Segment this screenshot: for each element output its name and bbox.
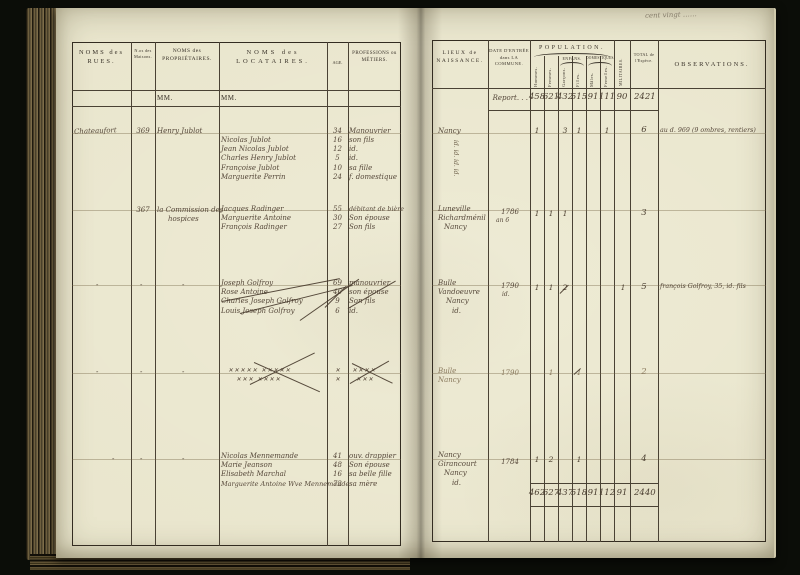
pencil-folio-note: cent vingt …… — [645, 10, 697, 20]
tenant-professions: débitant de bière Son épouse Son fils — [349, 205, 404, 233]
population-mark: 1 — [600, 126, 614, 135]
column-line — [658, 40, 659, 542]
header-numeros-maisons: N.os des Maisons. — [131, 48, 155, 60]
header-date-entree: DATE D'ENTRÉE dans LA COMMUNE. — [489, 48, 529, 68]
mm-label: MM. — [157, 93, 173, 103]
owner-age: 34 — [327, 127, 348, 135]
ditto-dash: - — [140, 368, 142, 376]
header-bottom-line — [432, 88, 766, 89]
tenant-ages: 55 30 27 — [327, 205, 348, 233]
entry-date-note: an 6 — [496, 217, 509, 224]
tenant-profession: son fils — [349, 136, 397, 145]
tenant-profession: id. — [349, 145, 397, 154]
birthplace: Nancy — [438, 127, 461, 135]
tenant-name: Marguerite Perrin — [221, 173, 296, 182]
header-bottom-line — [72, 90, 401, 91]
header-filles: Filles. — [576, 66, 581, 87]
header-femmes: Femmes. — [548, 57, 553, 87]
total-value: 6 — [632, 125, 656, 135]
tenant-age: 16 — [327, 136, 348, 145]
population-mark: 1 — [530, 126, 544, 135]
column-line — [630, 40, 631, 542]
total-value: 3 — [632, 208, 656, 218]
scratched-age: ✕ — [327, 367, 348, 374]
header-population: POPULATION. — [530, 44, 614, 53]
birthplaces: Luneville Richardménil Nancy — [438, 205, 486, 233]
tenant-name: François Radinger — [221, 223, 291, 232]
population-mark: 3 — [558, 126, 572, 135]
page-total: 2440 — [634, 488, 654, 498]
population-mark: 1 — [530, 283, 544, 292]
tenant-professions: ouv. drappier Son épouse sa belle fille … — [349, 452, 396, 489]
total-value: 4 — [632, 454, 656, 464]
totals-box-top-line — [530, 483, 658, 484]
entry-date: 1790 — [492, 369, 528, 377]
column-line — [155, 42, 156, 546]
report-value: 90 — [612, 92, 632, 102]
tenant-age: 6 — [327, 307, 348, 316]
tenant-profession: Son fils — [349, 223, 404, 232]
population-mark: 1 — [572, 455, 586, 464]
observation: françois Golfroy, 35, id. fils — [660, 283, 746, 290]
ditto-dash: - — [96, 281, 98, 289]
population-mark: 1 — [616, 283, 630, 292]
tenant-names-struck: Joseph Golfroy Rose Antoine Charles Jose… — [221, 279, 303, 316]
tenant-age: 48 — [327, 461, 348, 470]
tenant-age: 55 — [327, 205, 348, 214]
header-observations: OBSERVATIONS. — [658, 60, 766, 69]
birthplace: Nancy — [438, 451, 477, 460]
birthplaces: Bulle Vandoeuvre Nancy id. — [438, 279, 480, 316]
ditto-dash: - — [96, 368, 98, 376]
population-mark: 1 — [530, 209, 544, 218]
population-mark: 1 — [572, 126, 586, 135]
header-total-espece: TOTAL de l'Espèce. — [630, 52, 658, 64]
population-mark: 1 — [544, 209, 558, 218]
tenant-profession: Son épouse — [349, 461, 396, 470]
mm-label: MM. — [221, 93, 237, 103]
scratched-age: ✕ — [327, 376, 348, 383]
population-mark: 1 — [544, 368, 558, 377]
birthplace: Girancourt — [438, 460, 477, 469]
tenant-age: 10 — [327, 164, 348, 173]
report-value: 2421 — [634, 92, 654, 102]
header-noms-locataires: NOMS des LOCATAIRES. — [219, 48, 327, 67]
header-militaires: MILITAIRES. — [619, 44, 623, 86]
tenant-profession: ouv. drappier — [349, 452, 396, 461]
tenant-profession: id. — [349, 154, 397, 163]
birthplace: Bulle — [438, 279, 480, 288]
report-label: Report. . . — [490, 94, 528, 102]
entry-date: 1784 — [492, 458, 528, 466]
header-garcons: Garçons. — [562, 66, 567, 87]
header-enfans: ENFANS. — [558, 56, 586, 62]
owner-name: Henry Jublot — [157, 127, 202, 135]
ditto-dash: - — [112, 455, 114, 463]
header-males: Mâles. — [590, 66, 595, 87]
header-professions: PROFESSIONS ou MÉTIERS. — [348, 50, 401, 65]
photographed-register-scene: cent vingt …… NOMS des RUES. N.os des Ma… — [0, 0, 800, 575]
tenant-profession: sa belle fille — [349, 470, 396, 479]
tenant-ages: 16 12 5 10 24 — [327, 136, 348, 182]
report-bottom-line — [488, 110, 658, 111]
tenant-profession: débitant de bière — [349, 205, 404, 214]
total-value: 2 — [632, 367, 656, 377]
tenant-age: 41 — [327, 452, 348, 461]
tenant-age: 72 — [327, 480, 348, 489]
ink-layer: cent vingt …… NOMS des RUES. N.os des Ma… — [0, 0, 800, 575]
ditto-dash: - — [182, 368, 184, 376]
column-line — [219, 42, 220, 546]
header-hommes: Hommes. — [534, 57, 539, 87]
header-femelles: Femelles. — [604, 66, 609, 87]
birthplace: Richardménil — [438, 214, 486, 223]
house-number: 367 — [131, 206, 155, 214]
birthplace: Luneville — [438, 205, 486, 214]
header-noms-rues: NOMS des RUES. — [74, 48, 129, 67]
header-domestiques: DOMESTIQUES. — [586, 56, 614, 61]
tenant-profession: Son fils — [349, 297, 390, 306]
birthplace: Nancy — [438, 297, 480, 306]
tenant-age: 30 — [327, 214, 348, 223]
tenant-name: Marguerite Antoine — [221, 214, 291, 223]
ditto-dash: - — [182, 455, 184, 463]
tenant-profession: sa fille — [349, 164, 397, 173]
birthplace: Nancy — [438, 376, 461, 385]
birthplace: Vandoeuvre — [438, 288, 480, 297]
birthplace: Nancy — [438, 223, 486, 232]
tenant-age: 12 — [327, 145, 348, 154]
tenant-profession: id. — [349, 307, 390, 316]
entry-date: 1790 — [492, 282, 528, 290]
column-line — [586, 56, 587, 542]
tenant-profession: f. domestique — [349, 173, 397, 182]
observation: au d. 969 (9 ombres, rentiers) — [660, 127, 756, 134]
tenant-professions: son fils id. id. sa fille f. domestique — [349, 136, 397, 182]
ditto-dash: - — [140, 281, 142, 289]
right-page-table-frame — [432, 40, 766, 542]
birthplaces: Bulle Nancy — [438, 367, 461, 385]
tenant-profession: Son épouse — [349, 214, 404, 223]
header-lieux-naissance: LIEUX de NAISSANCE. — [432, 50, 488, 66]
entry-rule — [432, 459, 766, 460]
tenant-profession: sa mère — [349, 480, 396, 489]
subheader-bottom-line — [72, 106, 401, 107]
ditto-dash: - — [140, 455, 142, 463]
column-line — [614, 40, 615, 542]
tenant-names: Jacques Radinger Marguerite Antoine Fran… — [221, 205, 291, 233]
page-total: 91 — [612, 488, 632, 498]
birthplace-ditto-vertical: id. id. id. id. — [452, 140, 459, 188]
tenant-name: Charles Henry Jublot — [221, 154, 296, 163]
tenant-name: Jean Nicolas Jublot — [221, 145, 296, 154]
tenant-ages: 41 48 16 72 — [327, 452, 348, 489]
tenant-names: Nicolas Jublot Jean Nicolas Jublot Charl… — [221, 136, 296, 182]
tenant-age: 27 — [327, 223, 348, 232]
birthplace: id. — [438, 307, 480, 316]
birthplace: id. — [438, 479, 477, 488]
house-number: 369 — [131, 127, 155, 135]
birthplaces: Nancy Girancourt Nancy id. — [438, 451, 477, 488]
tenant-name: Jacques Radinger — [221, 205, 291, 214]
population-mark: 1 — [544, 283, 558, 292]
population-mark: 2 — [544, 455, 558, 464]
entry-rule — [432, 373, 766, 374]
header-age: AGE. — [327, 60, 348, 66]
total-value: 5 — [632, 282, 656, 292]
entry-date: 1786 — [492, 208, 528, 216]
population-mark: 1 — [558, 209, 572, 218]
column-line — [544, 56, 545, 542]
population-mark: 1 — [530, 455, 544, 464]
birthplace: Bulle — [438, 367, 461, 376]
tenant-age: 5 — [327, 154, 348, 163]
tenant-name: Nicolas Jublot — [221, 136, 296, 145]
totals-box-bottom-line — [530, 506, 658, 507]
ditto-dash: - — [182, 281, 184, 289]
owner-name-line1: la Commission des — [157, 206, 223, 214]
column-line — [131, 42, 132, 546]
tenant-age: 16 — [327, 470, 348, 479]
owner-profession: Manouvrier — [349, 127, 391, 135]
birthplace: Nancy — [438, 469, 477, 478]
column-line — [488, 40, 489, 542]
owner-name-line2: hospices — [168, 215, 199, 223]
tenant-professions: manouvrier son épouse Son fils id. — [349, 279, 390, 316]
tenant-name: Françoise Jublot — [221, 164, 296, 173]
entry-date-note: id. — [502, 291, 510, 298]
tenant-age: 24 — [327, 173, 348, 182]
header-noms-proprietaires: NOMS des PROPRIÉTAIRES. — [155, 48, 219, 64]
street-name: Chateaufort — [74, 126, 117, 135]
